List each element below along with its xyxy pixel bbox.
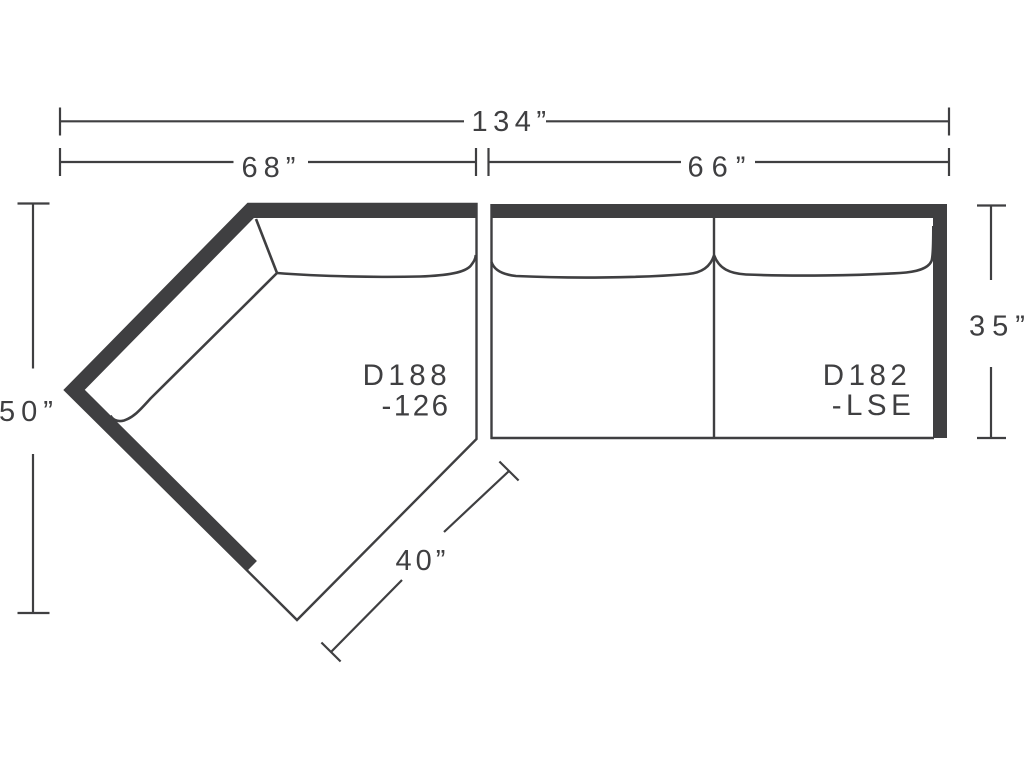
svg-text:D188: D188 <box>363 359 452 392</box>
svg-text:134”: 134” <box>472 106 552 138</box>
svg-text:D182: D182 <box>823 359 912 392</box>
svg-text:40”: 40” <box>396 545 450 577</box>
svg-text:35”: 35” <box>969 311 1024 343</box>
svg-text:66”: 66” <box>688 152 754 184</box>
svg-text:68”: 68” <box>242 152 302 184</box>
svg-text:50”: 50” <box>0 396 59 428</box>
svg-text:-126: -126 <box>382 390 451 423</box>
svg-text:-LSE: -LSE <box>832 389 916 422</box>
